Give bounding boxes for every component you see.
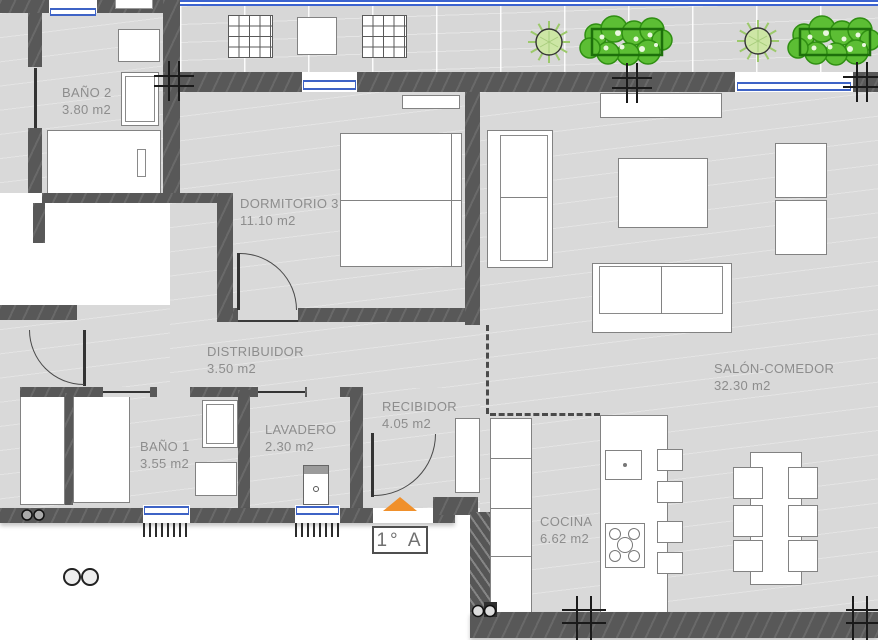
shower-bano2 <box>121 72 159 126</box>
bano2-window <box>50 8 96 16</box>
wall-wardrobe-divider <box>65 393 73 505</box>
room-area: 6.62 m2 <box>540 530 592 547</box>
open-plan-dashed-vertical <box>486 325 489 414</box>
dormitorio3-door-opening <box>238 308 298 322</box>
washbasin-bano1 <box>195 462 237 496</box>
kitchen-counter <box>490 418 532 613</box>
bedside-shelf <box>402 95 460 109</box>
dining-chair-6 <box>788 540 818 572</box>
wall-void-stub <box>33 203 45 243</box>
unit-label-box: 1° A <box>372 526 428 554</box>
kitchen-island <box>600 415 668 613</box>
bano1-window <box>144 506 189 515</box>
armchair-2 <box>775 200 827 255</box>
open-plan-dashed-horizontal <box>490 413 600 416</box>
wall-dormitorio3-left <box>217 193 233 322</box>
bar-stool-4 <box>657 552 683 574</box>
salon-window <box>737 82 851 91</box>
bano1-shutter <box>143 523 190 537</box>
terrace-table-grid-2 <box>362 15 407 58</box>
bar-stool-2 <box>657 481 683 503</box>
room-area: 11.10 m2 <box>240 212 339 229</box>
wall-top-left-niche <box>115 0 153 9</box>
wall-left-mid <box>0 305 77 320</box>
entrance-arrow-icon <box>383 497 417 511</box>
shower-column-bano1 <box>202 400 238 448</box>
dining-chair-3 <box>733 540 763 572</box>
sofa-left <box>487 130 553 268</box>
wall-dormitorio3-right <box>465 92 480 325</box>
room-label-recibidor: RECIBIDOR 4.05 m2 <box>382 398 457 432</box>
tv-console <box>600 93 722 118</box>
terrace-table-grid-1 <box>228 15 273 58</box>
wall-bano2-left-a <box>28 13 42 67</box>
unit-label: 1° A <box>376 530 423 551</box>
lavadero-pocket-door-leaf <box>258 391 305 393</box>
lavadero-window <box>296 506 339 515</box>
dining-chair-4 <box>788 467 818 499</box>
room-label-distribuidor: DISTRIBUIDOR 3.50 m2 <box>207 343 304 377</box>
bano1-door-opening <box>157 387 190 397</box>
dormitorio3-window <box>303 80 356 90</box>
bar-stool-3 <box>657 521 683 543</box>
dining-chair-1 <box>733 467 763 499</box>
dining-chair-2 <box>733 505 763 537</box>
room-label-salon: SALÓN-COMEDOR 32.30 m2 <box>714 360 834 394</box>
wall-bottom-right <box>470 612 878 638</box>
room-label-cocina: COCINA 6.62 m2 <box>540 513 592 547</box>
washbasin-bano2 <box>118 29 160 62</box>
washing-machine <box>303 465 329 505</box>
room-name: RECIBIDOR <box>382 398 457 415</box>
room-name: COCINA <box>540 513 592 530</box>
room-area: 2.30 m2 <box>265 438 336 455</box>
dining-chair-5 <box>788 505 818 537</box>
room-area: 32.30 m2 <box>714 377 834 394</box>
room-area: 3.50 m2 <box>207 360 304 377</box>
wall-bano1-lavadero <box>238 390 250 508</box>
wardrobe-left <box>20 393 65 505</box>
floor-plan: 1° A BAÑO 2 3.80 m2 DORMITORIO 3 11.10 m… <box>0 0 878 640</box>
room-name: DISTRIBUIDOR <box>207 343 304 360</box>
room-name: BAÑO 1 <box>140 438 189 455</box>
wall-kitchen-step <box>470 512 490 615</box>
room-name: LAVADERO <box>265 421 336 438</box>
terrace-deck <box>180 6 878 72</box>
room-name: BAÑO 2 <box>62 84 111 101</box>
lavadero-shutter <box>295 523 340 537</box>
room-name: DORMITORIO 3 <box>240 195 339 212</box>
bano1-pocket-door-leaf <box>103 391 150 393</box>
cooktop <box>605 523 645 568</box>
room-label-dormitorio3: DORMITORIO 3 11.10 m2 <box>240 195 339 229</box>
terrace-table-plain <box>297 17 337 55</box>
bathtub-faucet <box>137 149 146 177</box>
bathtub-bano1 <box>73 393 130 503</box>
double-bed <box>340 133 462 267</box>
loveseat <box>592 263 732 333</box>
room-name: SALÓN-COMEDOR <box>714 360 834 377</box>
room-area: 4.05 m2 <box>382 415 457 432</box>
bar-stool-1 <box>657 449 683 471</box>
room-area: 3.55 m2 <box>140 455 189 472</box>
room-label-bano1: BAÑO 1 3.55 m2 <box>140 438 189 472</box>
wall-bano2-right <box>163 0 180 193</box>
service-void <box>0 203 170 305</box>
lavadero-door-opening <box>307 387 340 397</box>
bano2-door-leaf <box>34 68 37 128</box>
hall-cabinet <box>455 418 480 493</box>
wall-below-bano2 <box>42 193 227 203</box>
room-label-lavadero: LAVADERO 2.30 m2 <box>265 421 336 455</box>
room-label-bano2: BAÑO 2 3.80 m2 <box>62 84 111 118</box>
wall-lavadero-recibidor <box>350 387 363 508</box>
kitchen-sink <box>605 450 642 480</box>
armchair-1 <box>775 143 827 198</box>
room-area: 3.80 m2 <box>62 101 111 118</box>
coffee-table <box>618 158 708 228</box>
wall-bano2-left-b <box>28 128 42 193</box>
